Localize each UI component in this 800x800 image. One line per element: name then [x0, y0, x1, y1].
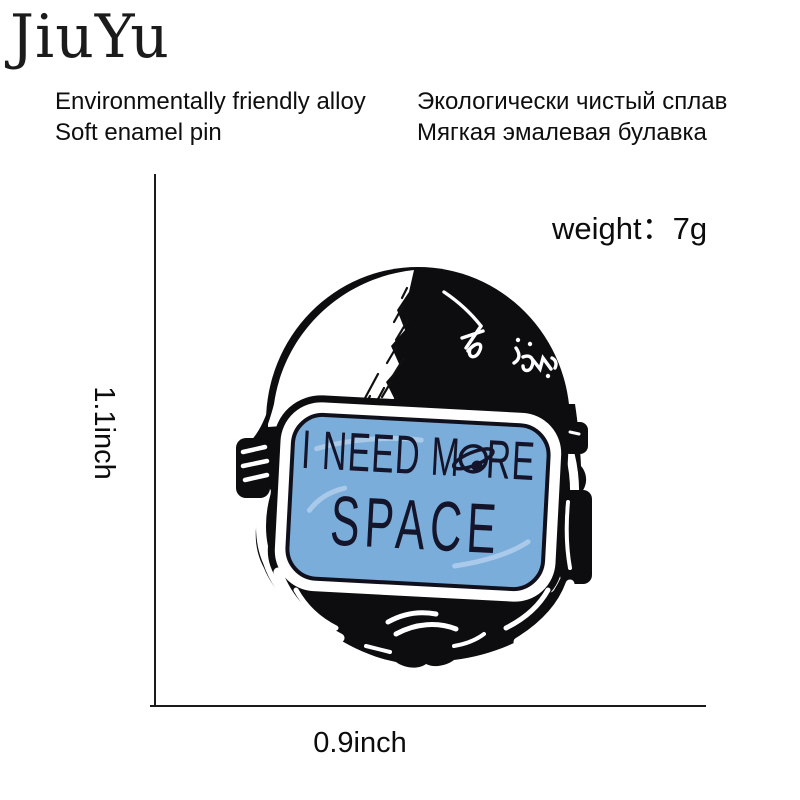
width-dimension-label: 0.9inch	[290, 727, 430, 760]
description-russian: Экологически чистый сплав Мягкая эмалева…	[417, 86, 727, 148]
product-page: { "brand": { "logo_text": "JiuYu" }, "de…	[0, 0, 800, 800]
description-english-line2: Soft enamel pin	[55, 117, 366, 148]
helmet-valve-knob	[236, 438, 270, 498]
product-image: I NEED M RE SPACE	[218, 254, 598, 684]
description-english: Environmentally friendly alloy Soft enam…	[55, 86, 366, 148]
height-dimension-line	[154, 174, 156, 706]
brand-logo: JiuYu	[10, 2, 170, 72]
description-russian-line1: Экологически чистый сплав	[417, 86, 727, 117]
description-english-line1: Environmentally friendly alloy	[55, 86, 366, 117]
visor-text-line1-prefix: I NEED M	[300, 419, 462, 488]
visor-text-line1-suffix: RE	[485, 428, 537, 492]
weight-label: weight：7g	[552, 203, 707, 248]
visor: I NEED M RE SPACE	[269, 397, 567, 608]
visor-text-line2: SPACE	[328, 482, 503, 569]
description-russian-line2: Мягкая эмалевая булавка	[417, 117, 727, 148]
width-dimension-line	[150, 705, 706, 707]
height-dimension-label: 1.1inch	[86, 378, 120, 488]
